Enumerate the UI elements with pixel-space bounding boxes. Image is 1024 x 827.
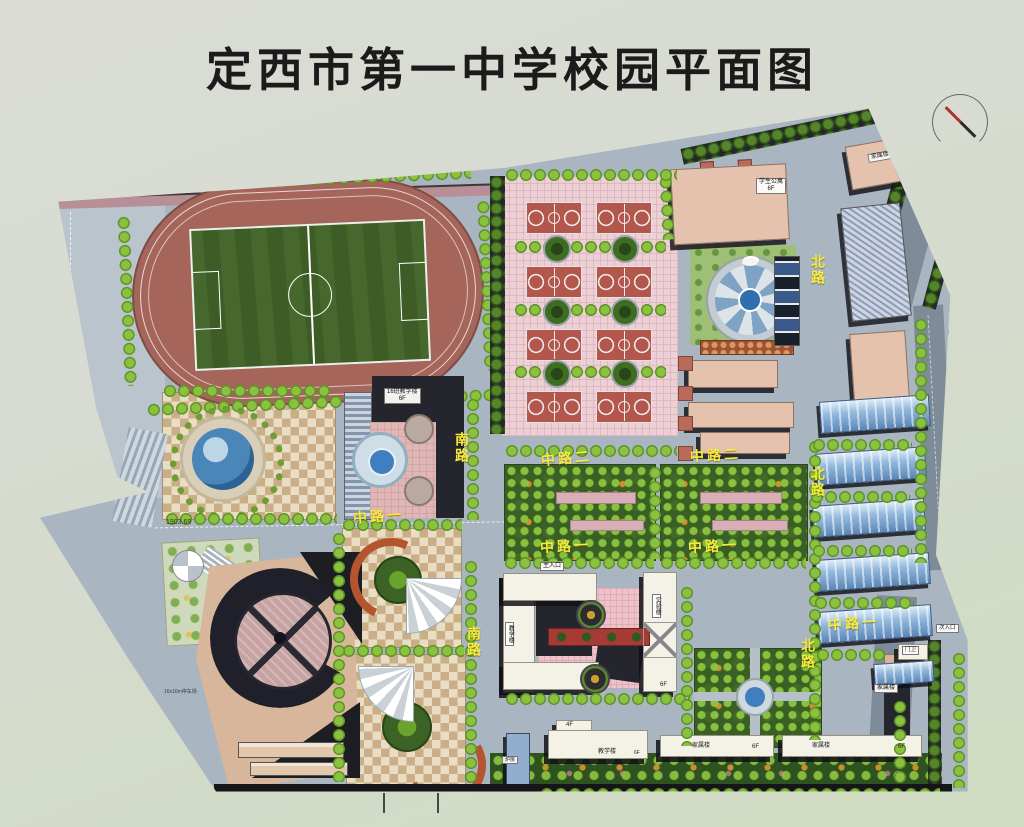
fountain-water <box>745 687 765 707</box>
tree-row <box>514 240 666 254</box>
fountain-center <box>738 288 762 312</box>
center-circle <box>287 272 333 318</box>
tree-row <box>812 438 912 451</box>
building-teaching-arm-north <box>503 573 597 601</box>
basketball-court <box>526 329 582 361</box>
fountain-water <box>192 428 254 490</box>
greenhouse <box>815 446 927 486</box>
spiral-feature <box>172 550 204 582</box>
greenhouse <box>812 498 926 538</box>
building-label-teaching-main: 教学楼 <box>505 622 514 646</box>
tree-row <box>922 127 983 309</box>
football-field <box>189 219 431 371</box>
tree-row <box>505 692 691 705</box>
tree-hedge <box>490 176 505 434</box>
pergola-bench <box>556 492 636 504</box>
pergola-bench <box>570 520 644 531</box>
tree-row <box>540 787 940 799</box>
student-apartment-name: 学生公寓 <box>759 179 783 186</box>
planter-square <box>678 386 693 401</box>
tree-row <box>660 556 806 569</box>
family2-floors: 6F <box>898 744 905 750</box>
elevation-note: 1903.69 <box>166 519 191 526</box>
hall-center <box>274 632 286 644</box>
survey-tick <box>383 793 385 813</box>
tree-planter <box>611 235 639 263</box>
building-glass-roof <box>840 202 912 322</box>
pergola-bench <box>700 492 782 504</box>
tree-row <box>332 532 345 782</box>
penalty-box <box>399 262 429 321</box>
boundary-dashed-line <box>70 212 72 482</box>
rosette-garden <box>580 664 610 694</box>
tree-row <box>505 168 677 181</box>
tree-planter <box>543 360 571 388</box>
building-east-1 <box>688 360 778 388</box>
edge-wall <box>73 648 173 807</box>
road-label-south-upper: 南路 <box>452 432 472 464</box>
penalty-box <box>192 271 222 330</box>
basketball-court <box>596 329 652 361</box>
student-apartment-group <box>670 155 801 253</box>
medallion <box>404 476 434 506</box>
tree-row <box>952 652 965 788</box>
compass-icon <box>932 94 988 150</box>
building-student-apartment <box>670 163 790 245</box>
road-label-south-lower: 南路 <box>464 626 484 658</box>
building-east-2 <box>688 402 794 428</box>
parking-cars <box>774 256 800 346</box>
tree-row <box>504 556 654 569</box>
campus-plan-photo: 定西市第一中学校园平面图 <box>0 0 1024 827</box>
road-label-north-middle: 北路 <box>808 466 828 498</box>
planter-square <box>678 416 693 431</box>
building-label-boiler: 炉房 <box>502 756 518 764</box>
planter-square <box>678 356 693 371</box>
round-fountain-small <box>736 678 774 716</box>
family1-floors: 6F <box>752 744 759 750</box>
tree-row <box>812 544 912 557</box>
basketball-court <box>596 391 652 423</box>
basketball-court <box>526 391 582 423</box>
family2-label: 家属楼 <box>812 740 830 749</box>
teaching-south-floors: 6F <box>634 750 640 756</box>
road-label-middle2-east: 中路二 <box>690 444 742 467</box>
survey-tick <box>437 793 439 813</box>
lab-atrium <box>643 622 677 658</box>
classroom16-floors: 6F <box>387 396 418 403</box>
tree-row <box>163 384 331 398</box>
building-label-lab: 实验楼 <box>652 594 661 618</box>
main-entrance-label: 主入口 <box>540 562 564 571</box>
tree-row <box>648 466 661 559</box>
mandala-fountain <box>352 432 408 488</box>
classroom16-name: 16班教学楼 <box>387 389 418 396</box>
lab-floors: 6F <box>660 682 667 688</box>
building-label-classroom16: 16班教学楼 6F <box>384 388 421 404</box>
road-label-middle1-east: 中路一 <box>688 535 740 558</box>
basketball-court <box>596 202 652 234</box>
tree-planter <box>611 360 639 388</box>
parking-note: 16x16m停车场 <box>164 688 197 695</box>
tree-row <box>342 644 464 657</box>
tree-row <box>514 303 666 317</box>
sculpture-swans <box>742 258 758 266</box>
tree-row <box>814 596 914 609</box>
road-label-middle1-west: 中路一 <box>352 504 404 528</box>
fountain <box>180 416 266 502</box>
basketball-court <box>526 202 582 234</box>
tree-row <box>680 586 693 746</box>
campus-map: 16班教学楼 6F <box>0 0 1024 827</box>
mandala-water <box>368 448 396 476</box>
compass-needle <box>944 106 976 138</box>
building-label-family-east: 家属楼 <box>874 684 898 693</box>
tree-row <box>464 560 477 785</box>
student-apartment-floors: 6F <box>759 186 783 193</box>
secondary-entrance-label: 次入口 <box>936 624 959 633</box>
annex-bar <box>238 742 344 758</box>
road-label-north-lower: 北路 <box>798 638 818 670</box>
greenhouse <box>873 660 934 686</box>
medallion <box>404 414 434 444</box>
tree-planter <box>543 235 571 263</box>
building-family-top <box>845 134 927 191</box>
tree-row <box>893 700 906 785</box>
tree-row <box>914 318 927 563</box>
building-label-student-apartment: 学生公寓 6F <box>756 178 786 194</box>
tree-row <box>816 648 886 661</box>
tree-planter <box>611 298 639 326</box>
guard-label: 门卫 <box>902 646 919 655</box>
road-label-middle1-center: 中路一 <box>540 535 592 558</box>
teaching-south-label: 教学楼 <box>598 746 616 755</box>
pergola-bench <box>712 520 788 531</box>
basketball-court <box>596 266 652 298</box>
basketball-court <box>526 266 582 298</box>
tree-row <box>514 365 666 379</box>
road-label-north-upper: 北路 <box>808 254 828 286</box>
red-walkway <box>548 628 650 646</box>
tree-planter <box>543 298 571 326</box>
family1-label: 家属楼 <box>692 740 710 749</box>
annex-floors: 4F <box>566 722 573 728</box>
tree-row <box>948 330 961 560</box>
road-label-middle1-far-east: 中路一 <box>827 611 879 635</box>
page-title: 定西市第一中学校园平面图 <box>0 34 1024 100</box>
rosette-garden <box>576 600 606 630</box>
